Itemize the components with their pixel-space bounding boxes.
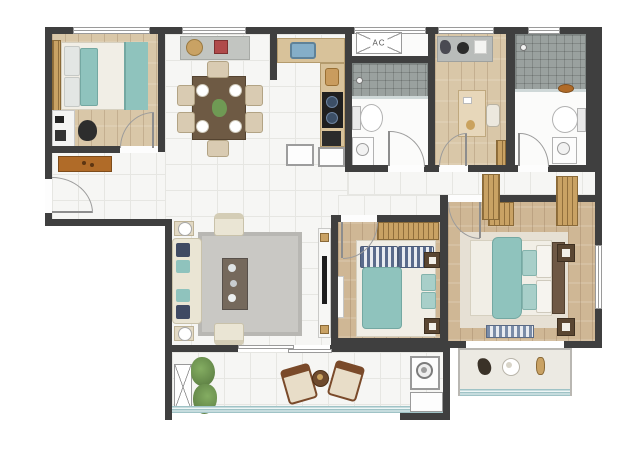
wall-master-top2	[576, 195, 595, 202]
bedroom2-nightstand	[424, 252, 440, 268]
wall-hall-top4	[548, 165, 595, 172]
master-teal-throw	[492, 237, 522, 319]
wall-bedroom2-master	[440, 195, 448, 348]
hallway-closet-2	[556, 176, 578, 226]
balcony-table-decor	[317, 374, 323, 380]
bay-decor-cup	[506, 362, 512, 368]
bedroom2-headboard	[377, 222, 439, 240]
bay-window-glass	[460, 389, 570, 396]
wall-living-bottom2	[330, 345, 448, 352]
bathroom2-toilet-bowl	[552, 106, 578, 133]
bathroom2-shower	[515, 34, 586, 91]
dresser-knob	[82, 161, 86, 165]
wall	[244, 27, 356, 34]
bedroom2-nightstand	[424, 318, 440, 334]
wall-living-bottom1	[165, 345, 238, 352]
master-pillow	[536, 245, 552, 278]
bathroom1-toilet-bowl	[360, 104, 383, 132]
table-centerpiece	[212, 99, 227, 117]
wall-kitchen-left	[270, 34, 277, 80]
dresser-knob	[90, 163, 94, 167]
master-teal-cushion	[522, 250, 537, 276]
bedroom1-teal-pillows	[80, 48, 98, 106]
plate	[196, 84, 209, 97]
study-console-cushion	[474, 40, 487, 54]
wall	[148, 27, 184, 34]
dining-chair	[177, 112, 195, 133]
study-bookshelf	[496, 140, 506, 168]
window-master	[595, 245, 602, 309]
wall-bedroom2-bottom	[331, 338, 448, 345]
wall-bath1-top	[352, 56, 428, 63]
bedroom1-office-chair	[78, 120, 97, 141]
wall	[45, 27, 52, 179]
wall	[45, 219, 172, 226]
bedroom1-desk-item	[55, 130, 66, 141]
hallway-closet-1	[482, 174, 500, 220]
dining-chair	[245, 85, 263, 106]
bedroom1-desk-monitor	[55, 116, 64, 123]
bathroom1-shower-glass	[352, 96, 428, 99]
burner	[326, 96, 338, 108]
wall-bedroom1-bottom	[45, 146, 120, 153]
sofa-pillow-dark	[176, 305, 190, 319]
bathroom1-shower	[352, 63, 428, 97]
sliding-door-panel	[288, 349, 332, 353]
wall-hall-top3	[468, 165, 518, 172]
kitchen-sink	[290, 42, 316, 59]
showerhead	[520, 44, 527, 51]
coffee-table-decor	[228, 294, 236, 302]
wall-master-bottom2	[564, 341, 602, 348]
tv-console-decor	[320, 325, 329, 334]
burner	[326, 112, 338, 124]
table-lamp	[178, 222, 192, 236]
window-study	[438, 27, 494, 34]
console-red-box	[214, 40, 228, 54]
ac-platform-top: AC	[356, 32, 402, 54]
balcony-ac-platform	[174, 364, 192, 410]
study-desk-item	[463, 97, 472, 104]
balcony-glass-railing	[172, 406, 443, 413]
coffee-table-decor	[228, 264, 236, 272]
wall-laundry-right	[443, 348, 450, 420]
wall	[165, 219, 172, 420]
living-rug	[198, 232, 302, 336]
bedroom2-teal-cushion	[421, 274, 436, 291]
sofa-pillow-dark	[176, 243, 190, 257]
wall-bedroom2-left	[331, 215, 338, 345]
tv	[322, 256, 327, 304]
bathroom2-toilet-tank	[577, 108, 586, 132]
wall-study-bath2	[506, 27, 515, 172]
kitchen-jar	[325, 68, 339, 86]
dining-chair	[177, 85, 195, 106]
entry-door-gap	[45, 179, 52, 213]
window-bedroom1	[73, 27, 150, 34]
bathroom1-basin	[356, 143, 369, 156]
hallway-landing-floor	[338, 195, 448, 217]
door-gap	[448, 195, 482, 202]
wall-bedroom2-top2	[377, 215, 448, 222]
washing-machine-door	[421, 367, 427, 373]
dining-chair	[245, 112, 263, 133]
window-dining	[182, 27, 246, 34]
dining-chair	[207, 61, 229, 78]
kitchen-mat	[322, 131, 341, 146]
door-gap	[341, 215, 377, 222]
tv-console-decor	[320, 233, 329, 242]
wall-hall-top2	[424, 165, 439, 172]
living-armchair-top	[214, 213, 244, 236]
plate	[229, 120, 242, 133]
sofa-pillow-teal	[176, 260, 190, 273]
plate	[229, 84, 242, 97]
ac-label: AC	[370, 39, 387, 48]
balcony-plant	[191, 357, 215, 386]
floor-plan: AC	[0, 0, 640, 453]
master-foot-bench	[486, 325, 534, 338]
wall	[595, 27, 602, 247]
fridge	[286, 144, 314, 166]
study-chair	[486, 104, 500, 127]
table-lamp	[178, 327, 192, 341]
bedroom2-teal-duvet	[362, 267, 402, 329]
wall-bath1-study	[428, 27, 435, 172]
wall-bath2-right	[586, 27, 595, 172]
sliding-door-panel	[238, 345, 294, 349]
study-console-speaker	[457, 42, 469, 54]
wall-kitchen-bath	[345, 27, 352, 172]
laundry-cabinet	[410, 392, 443, 412]
bay-decor-bottle	[536, 357, 545, 375]
study-desk-item2	[466, 120, 475, 130]
wall-hall-top1	[352, 165, 388, 172]
kitchen-cabinet	[318, 147, 345, 167]
bedroom1-headboard	[52, 40, 61, 112]
master-nightstand	[557, 244, 575, 262]
window-bathroom2	[528, 27, 560, 34]
bedroom2-teal-cushion	[421, 292, 436, 309]
master-teal-cushion	[522, 284, 537, 310]
bathroom2-wood-mat	[558, 84, 574, 93]
master-pillow	[536, 280, 552, 313]
console-basket	[186, 39, 203, 56]
study-console-bag	[440, 40, 451, 54]
master-nightstand	[557, 318, 575, 336]
bathroom2-shower-glass	[515, 89, 586, 92]
wall-master-top1	[497, 195, 559, 202]
bedroom1-teal-runner	[124, 42, 148, 110]
coffee-table-decor	[230, 280, 237, 287]
wall-master-bottom1	[448, 341, 466, 348]
bathroom2-basin	[557, 142, 570, 155]
living-armchair-bottom	[214, 323, 244, 346]
bedroom1-pillow	[64, 77, 80, 107]
showerhead	[356, 77, 363, 84]
wall-laundry-bottom	[400, 413, 450, 420]
wall-bedroom1-right	[158, 27, 165, 152]
sofa-pillow-teal	[176, 289, 190, 302]
dining-chair	[207, 140, 229, 157]
bedroom1-pillow	[64, 46, 80, 76]
plate	[196, 120, 209, 133]
